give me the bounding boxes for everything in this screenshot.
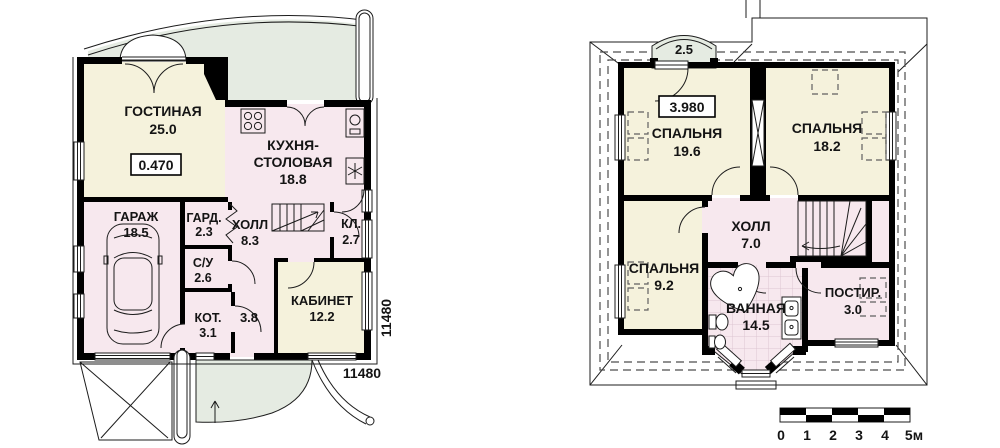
ground-floor-plan: ГОСТИНАЯ 25.0 0.470 КУХНЯ- СТОЛОВАЯ 18.8… [73,10,394,444]
living-label: ГОСТИНАЯ [124,103,201,119]
laundry-label: ПОСТИР. [825,285,881,300]
scale-tick-2: 2 [829,427,837,443]
bath-label: ВАННАЯ [726,300,786,316]
hall2-label: ХОЛЛ [731,218,770,234]
study-room [278,262,368,354]
corridor-area: 3.8 [240,310,258,325]
driveway [80,362,172,440]
study-label: КАБИНЕТ [291,293,353,308]
boiler-area: 3.1 [199,326,216,340]
bath-area: 14.5 [742,317,769,333]
bedroom3-area: 9.2 [654,277,674,293]
toilet-icon [709,314,728,330]
bay-window-front [742,370,770,377]
hall1-label: ХОЛЛ [232,217,268,232]
scale-bar: 0 1 2 3 4 5м [777,408,923,443]
floor-plan-sheet: ГОСТИНАЯ 25.0 0.470 КУХНЯ- СТОЛОВАЯ 18.8… [0,0,1000,448]
hall2-area: 7.0 [741,235,761,251]
scale-tick-4: 4 [881,427,889,443]
bidet-icon [709,335,726,349]
balcony-area: 2.5 [675,42,693,57]
bedroom3-label: СПАЛЬНЯ [629,260,700,276]
scale-tick-0: 0 [777,427,785,443]
garage-door-opening [95,353,170,360]
kitchen-label2: СТОЛОВАЯ [254,154,333,170]
bedroom1-area: 19.6 [673,143,700,159]
elevation-floor2: 3.980 [669,99,704,115]
living-area: 25.0 [149,121,176,137]
dim-right: 11480 [378,299,394,337]
garage-area: 18.5 [123,225,148,240]
elevation-floor1: 0.470 [138,157,173,173]
scale-tick-5: 5м [905,427,923,443]
scale-tick-1: 1 [803,427,811,443]
closet-label: КЛ. [341,217,361,231]
kitchen-label1: КУХНЯ- [267,137,319,153]
study-area: 12.2 [309,309,334,324]
wardrobe-label: ГАРД. [186,211,221,225]
hall1-area: 8.3 [241,233,259,248]
wc-area: 2.6 [194,271,211,285]
plan-drawing: ГОСТИНАЯ 25.0 0.470 КУХНЯ- СТОЛОВАЯ 18.8… [0,0,1000,448]
scale-tick-3: 3 [855,427,863,443]
vent-shaft [752,100,764,166]
wardrobe-area: 2.3 [195,225,212,239]
bedroom2-label: СПАЛЬНЯ [792,120,863,136]
bedroom1-label: СПАЛЬНЯ [652,125,723,141]
bedroom2-area: 18.2 [813,138,840,154]
boiler-label: КОТ. [194,311,221,325]
wc-label: С/У [193,256,214,270]
kitchen-area: 18.8 [279,171,306,187]
upper-floor-plan: 2.5 3.980 СПАЛЬНЯ 19.6 СПАЛЬНЯ 18.2 ХОЛЛ… [590,0,927,389]
laundry-area: 3.0 [844,302,862,317]
dim-bottom: 11480 [343,365,381,381]
closet-area: 2.7 [342,233,359,247]
garage-label: ГАРАЖ [114,209,159,224]
railing-post [366,417,374,425]
